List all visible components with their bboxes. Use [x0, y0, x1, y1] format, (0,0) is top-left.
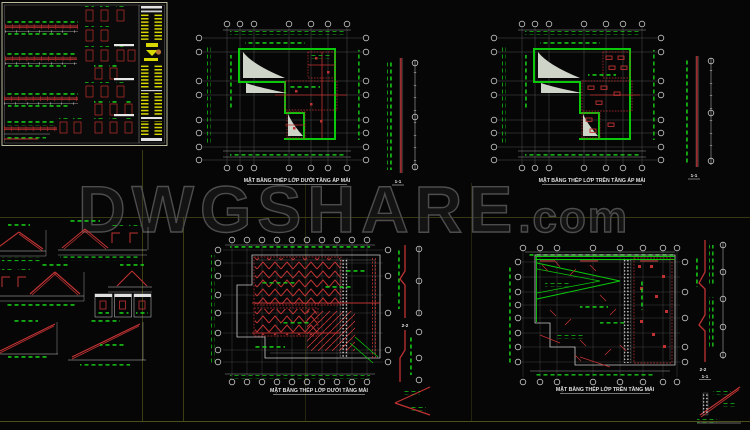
drawing-title: MẶT BẰNG THÉP LỚP DƯỚI TẦNG ÁP MÁI — [244, 176, 351, 184]
void-wedge-shapes — [243, 52, 303, 136]
section-label: 1-1 — [702, 374, 709, 379]
drawing-title-block: MẶT BẰNG THÉP LỚP TRÊN TẦNG MÁI — [556, 385, 655, 394]
panel-plan-lower-attic: 1-1 MẶT BẰNG THÉP LỚP DƯỚI TẦNG ÁP MÁI — [185, 5, 450, 205]
bar-bend-details — [2, 269, 30, 287]
gable-section-4 — [108, 263, 152, 292]
edge-section-detail-b — [400, 329, 422, 383]
edge-section-detail-a: 2-2 — [397, 245, 422, 328]
gable-section-1 — [0, 222, 46, 261]
panel-roof-sections — [0, 215, 185, 430]
section-label: 1-1 — [691, 173, 698, 178]
drawing-title-block: MẶT BẰNG THÉP LỚP DƯỚI TẦNG ÁP MÁI — [244, 176, 351, 185]
section-detail-1-1: 1-1 — [387, 58, 418, 185]
note-symbol-dot — [156, 49, 161, 54]
rafter-section-2 — [68, 319, 146, 366]
slab-green-edges — [535, 256, 675, 322]
section-label: 1-1 — [395, 179, 402, 184]
void-wedge-shapes — [538, 52, 598, 136]
column-strip-dotted — [624, 258, 631, 363]
panel-plan-lower-roof: 2-2 MẶT BẰNG THÉP LỚP DƯỚI TẦNG MÁI — [185, 225, 465, 430]
green-arrow-lines — [537, 263, 620, 299]
section-detail-1-1: 1-1 — [685, 56, 714, 179]
rafter-section-1 — [0, 319, 58, 360]
drawing-title: MẶT BẰNG THÉP LỚP TRÊN TẦNG ÁP MÁI — [539, 176, 646, 184]
drawing-title: MẶT BẰNG THÉP LỚP DƯỚI TẦNG MÁI — [270, 386, 369, 394]
corner-detail — [395, 387, 430, 415]
slab-outline — [535, 255, 675, 365]
drawing-title-block: MẶT BẰNG THÉP LỚP TRÊN TẦNG ÁP MÁI — [539, 176, 646, 185]
drawing-title: MẶT BẰNG THÉP LỚP TRÊN TẦNG MÁI — [556, 385, 655, 393]
panel-plan-upper-attic: 1-1 MẶT BẰNG THÉP LỚP TRÊN TẦNG ÁP MÁI — [480, 5, 750, 205]
slab-outline-inner — [540, 260, 670, 360]
grid-lines — [522, 251, 680, 377]
cad-sheet: DWGSHARE.com — [0, 0, 750, 430]
panel-plan-upper-roof: 2-2 1-1 MẶT BẰNG THÉP LỚP TRÊN TẦNG MÁI — [480, 225, 750, 430]
boxed-details — [95, 294, 151, 317]
eave-slope-detail: 1-1 — [697, 374, 741, 423]
rebar-red-marks — [540, 258, 672, 367]
drawing-title-block: MẶT BẰNG THÉP LỚP DƯỚI TẦNG MÁI — [270, 386, 369, 395]
dimension-rows — [508, 252, 675, 376]
gable-section-2 — [58, 219, 148, 260]
section-label: 2-2 — [402, 323, 409, 328]
edge-section-zigzag: 2-2 — [695, 240, 726, 372]
section-label: 2-2 — [700, 367, 707, 372]
rebar-red-marks — [582, 52, 640, 138]
panel-beam-details — [0, 0, 185, 158]
